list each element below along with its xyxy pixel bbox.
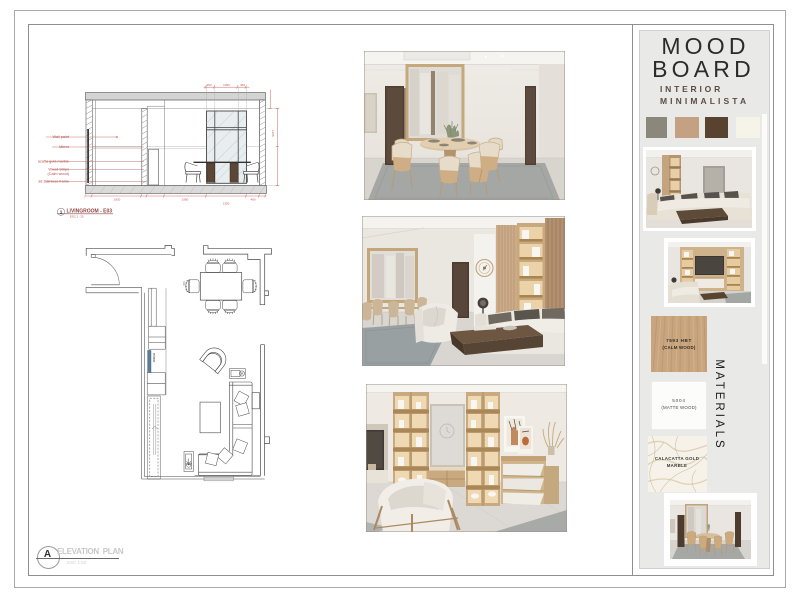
svg-text:1265: 1265: [271, 130, 275, 137]
svg-text:MARBLE: MARBLE: [667, 463, 688, 468]
svg-text:(CALM WOOD): (CALM WOOD): [662, 345, 696, 350]
svg-text:450: 450: [206, 83, 211, 87]
svg-text:1830: 1830: [114, 198, 121, 202]
svg-text:450: 450: [182, 281, 186, 286]
svg-text:1560: 1560: [182, 198, 189, 202]
svg-text:mirror: mirror: [152, 353, 156, 363]
svg-text:1350: 1350: [223, 83, 230, 87]
svg-text:450: 450: [240, 83, 245, 87]
svg-text:CALACATTA GOLD: CALACATTA GOLD: [655, 456, 699, 461]
svg-text:(Calm wood): (Calm wood): [47, 172, 69, 176]
svg-text:ESC 1 : 25: ESC 1 : 25: [70, 215, 84, 219]
svg-text:5004: 5004: [672, 398, 685, 403]
svg-text:1350: 1350: [223, 202, 230, 206]
svg-text:(MATTE WOOD): (MATTE WOOD): [661, 405, 697, 410]
svg-text:480: 480: [250, 198, 255, 202]
svg-text:7593 HBT: 7593 HBT: [666, 338, 692, 343]
